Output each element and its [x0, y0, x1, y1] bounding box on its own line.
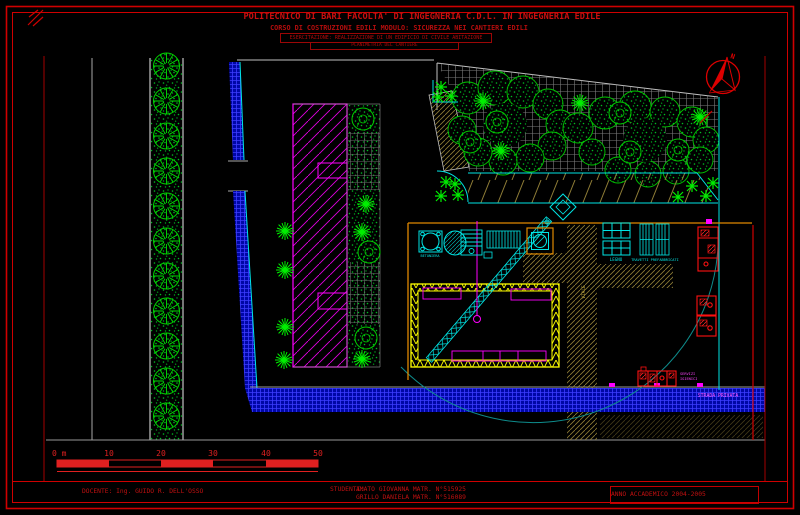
sheet-title-line3: ESERCITAZIONE: REALIZZAZIONE DI UN EDIFI… — [290, 35, 483, 41]
site-container-1 — [698, 227, 718, 271]
site-container-2 — [697, 296, 716, 336]
existing-building-hatched — [293, 104, 347, 367]
cad-sheet: STRADA PRIVATA — [0, 0, 800, 515]
road-label: STRADA PRIVATA — [698, 393, 739, 399]
scale-bar: 0 m 10 20 30 40 50 — [52, 449, 323, 472]
scale-tick-label: 20 — [156, 449, 166, 458]
concrete-mixer — [419, 231, 442, 252]
sheet-title-line2: CORSO DI COSTRUZIONI EDILI MODULO: SICUR… — [8, 24, 790, 32]
sheet-subtitle-box2: PLANIMETRIA DEL CANTIERE — [310, 42, 459, 51]
parking-strip — [468, 173, 718, 203]
teacher-name: DOCENTE: Ing. GUIDO R. DELL'OSSO — [82, 488, 203, 495]
sheet-title-line4: PLANIMETRIA DEL CANTIERE — [351, 43, 417, 48]
services-label-1: SERVIZI — [680, 372, 695, 376]
sheet-title-line1: POLITECNICO DI BARI FACOLTA' DI INGEGNER… — [54, 12, 790, 22]
blue-road: STRADA PRIVATA — [245, 383, 765, 412]
mortar-silo — [444, 231, 466, 255]
scale-tick-label: 40 — [261, 449, 271, 458]
street-label-vertical: VIALE — [581, 285, 587, 299]
services-label-2: IGIENICI — [680, 377, 697, 381]
scale-tick-label: 30 — [208, 449, 218, 458]
tree-avenue — [150, 53, 183, 440]
scale-tick-label: 50 — [313, 449, 323, 458]
scale-zero: 0 m — [52, 449, 67, 458]
wood-label: LEGNO — [610, 257, 623, 262]
scale-tick-label: 10 — [104, 449, 114, 458]
sanitary-hut — [638, 367, 676, 386]
beam-storage — [640, 224, 669, 255]
park-corner-bushes-bottomleft — [435, 171, 468, 202]
academic-year: ANNO ACCADEMICO 2004-2005 — [611, 491, 706, 498]
north-arrow-icon: N — [707, 52, 740, 93]
blue-fence-band — [229, 62, 257, 388]
academic-year-box: ANNO ACCADEMICO 2004-2005 — [610, 486, 759, 504]
student-2: GRILLO DANIELA MATR. N°516089 — [356, 494, 466, 501]
wood-storage — [603, 223, 630, 255]
student-1: AMATO GIOVANNA MATR. N°515925 — [356, 486, 466, 493]
site-plan-drawing: STRADA PRIVATA — [0, 0, 800, 515]
mixer-label: BETONIERA — [421, 254, 441, 258]
bush-row — [275, 222, 294, 369]
north-label: N — [729, 52, 735, 61]
beam-label: TRAVETTI PREFABBRICATI — [631, 258, 679, 262]
